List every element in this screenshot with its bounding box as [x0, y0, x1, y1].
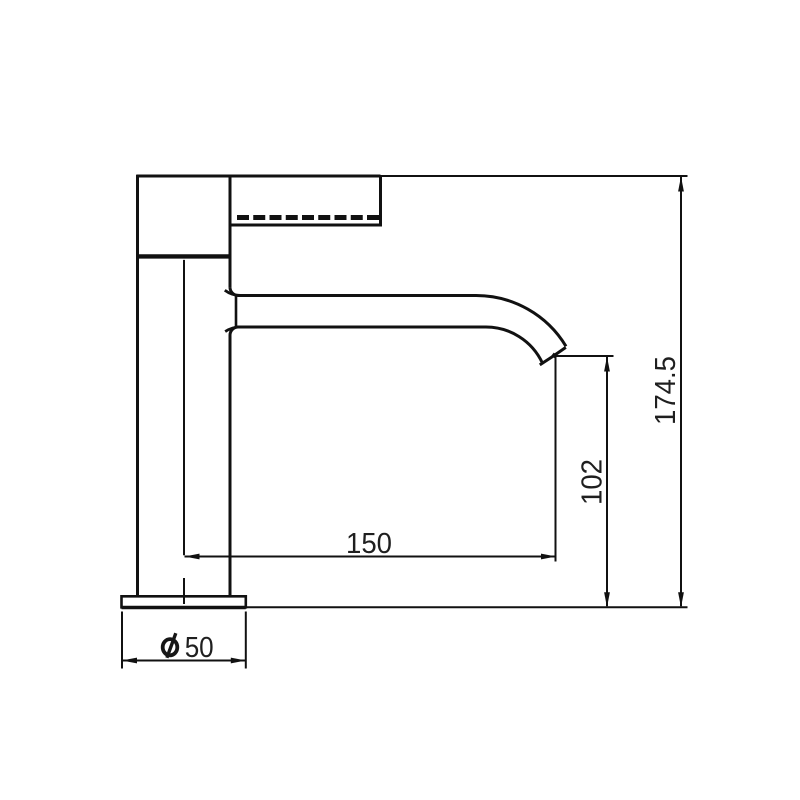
svg-text:150: 150 [346, 528, 392, 560]
svg-text:174.5: 174.5 [650, 356, 682, 425]
svg-text:50: 50 [185, 632, 214, 664]
svg-text:102: 102 [577, 459, 609, 505]
